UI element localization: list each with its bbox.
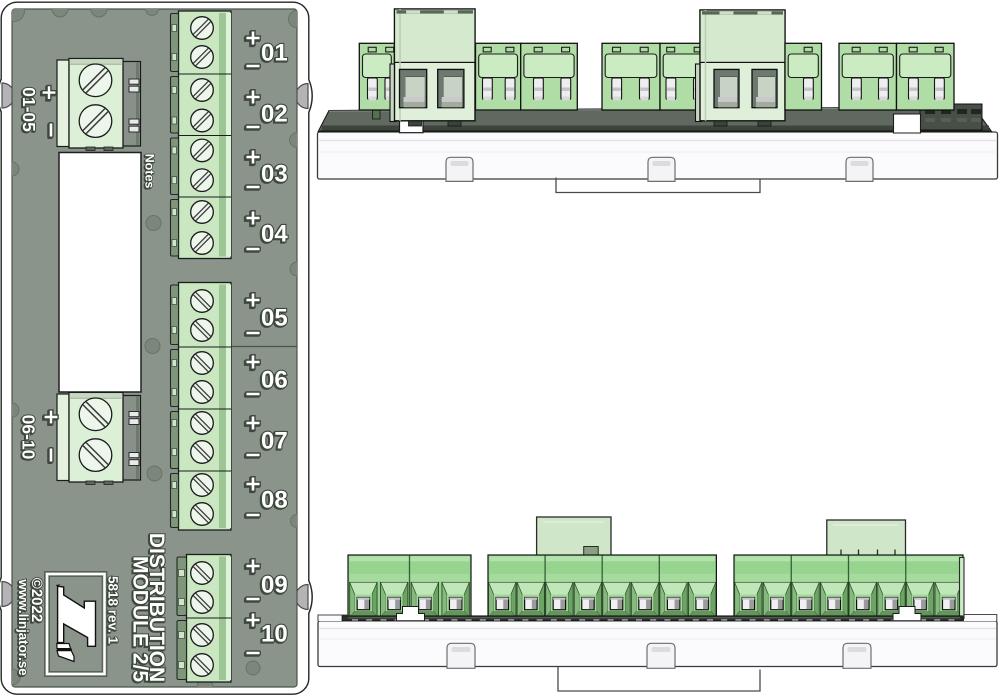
svg-text:01: 01 bbox=[261, 40, 288, 67]
svg-text:07: 07 bbox=[261, 428, 288, 455]
svg-text:03: 03 bbox=[261, 161, 288, 188]
svg-text:MODULE 2/5: MODULE 2/5 bbox=[129, 556, 152, 682]
svg-text:06: 06 bbox=[261, 367, 288, 394]
svg-text:09: 09 bbox=[261, 572, 288, 599]
svg-text:10: 10 bbox=[261, 621, 288, 648]
svg-text:05: 05 bbox=[261, 305, 288, 332]
svg-text:04: 04 bbox=[261, 221, 288, 248]
svg-text:06-10: 06-10 bbox=[19, 415, 39, 460]
svg-text:Notes: Notes bbox=[143, 154, 157, 189]
svg-text:01-05: 01-05 bbox=[19, 87, 39, 132]
svg-text:5818 rev. 1: 5818 rev. 1 bbox=[106, 576, 121, 645]
svg-text:www.linjator.se: www.linjator.se bbox=[16, 578, 31, 675]
svg-text:08: 08 bbox=[261, 487, 288, 514]
svg-text:02: 02 bbox=[261, 101, 288, 128]
